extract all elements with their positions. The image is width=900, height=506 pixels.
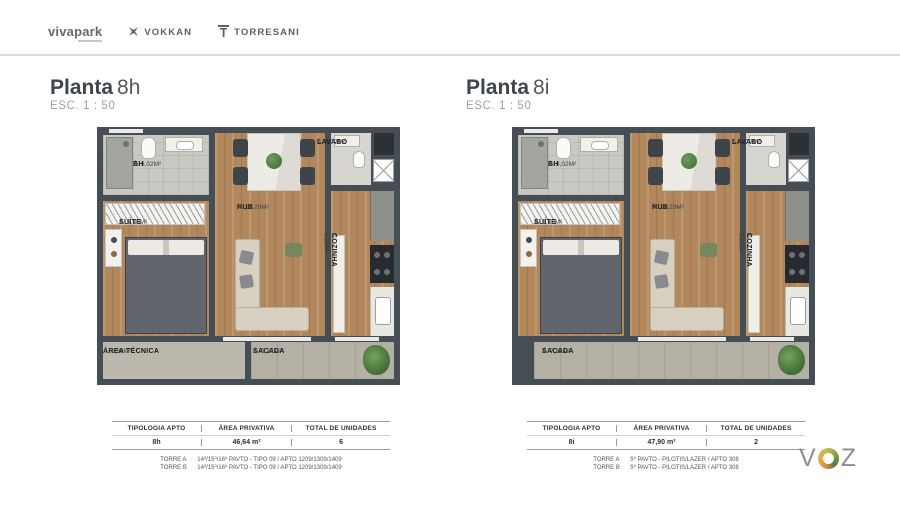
chair (233, 167, 248, 185)
stove (785, 245, 809, 283)
spec-table-header-row: TIPOLOGIA APTO ÁREA PRIVATIVA TOTAL DE U… (112, 422, 390, 435)
washing-machine (373, 159, 394, 182)
toilet (141, 137, 156, 159)
lavabo-toilet (768, 151, 780, 168)
table-plant-icon (681, 153, 697, 169)
torresani-t-icon (218, 24, 229, 42)
balcony-plant-icon (363, 345, 390, 375)
plan-8h-title-code: 8h (117, 76, 140, 99)
kitchen-sink (785, 287, 809, 336)
stove (370, 245, 394, 283)
balcony-divider-wall (245, 342, 251, 379)
vivapark-tagline (78, 40, 102, 42)
spec-table-header-row: TIPOLOGIA APTO ÁREA PRIVATIVA TOTAL DE U… (527, 422, 805, 435)
sofa-chaise (235, 307, 309, 331)
window (638, 337, 726, 341)
spec-table-8h: TIPOLOGIA APTO ÁREA PRIVATIVA TOTAL DE U… (112, 421, 390, 450)
voz-swirl-o-icon (815, 446, 841, 472)
kitchen-cabinet (785, 191, 809, 241)
shower (106, 137, 133, 189)
voz-logo-v: V (799, 446, 816, 471)
shaft (789, 133, 809, 155)
sofa-cushion (239, 250, 254, 265)
plan-8h-title: Planta8h (50, 77, 140, 98)
footnotes-8i: TORRE A 5º PAVTO - PILOTIS/LAZER / APTO … (527, 457, 805, 471)
spec-table-value-row: 8h 46,64 m² 6 (112, 435, 390, 449)
plan-8i-title-word: Planta (466, 76, 529, 99)
pouf (285, 243, 302, 257)
plan-8i-title: Planta8i (466, 77, 549, 98)
chair (715, 167, 730, 185)
plan-8h-title-word: Planta (50, 76, 113, 99)
table-plant-icon (266, 153, 282, 169)
kitchen-sink (370, 287, 394, 336)
vivapark-logo-text: vivapark (48, 25, 102, 38)
footnotes-8h: TORRE A 14º/15º/16º PAVTO - TIPO 09 / AP… (112, 457, 390, 471)
balcony-plant-icon (778, 345, 805, 375)
floorplan-8h: BH Á. 3,02M² SUÍTE Á. 8,85M² HUB Á. 14,2… (97, 127, 400, 385)
chair (300, 167, 315, 185)
chair (300, 139, 315, 157)
footnote-row: TORRE A 14º/15º/16º PAVTO - TIPO 09 / AP… (160, 457, 341, 464)
bathroom-sink (165, 137, 203, 152)
footnote-row: TORRE B 14º/15º/16º PAVTO - TIPO 09 / AP… (160, 465, 341, 472)
footnote-row: TORRE B 5º PAVTO - PILOTIS/LAZER / APTO … (593, 465, 738, 472)
sofa-chaise (650, 307, 724, 331)
bed-pillows (128, 240, 204, 255)
kitchen-cabinet (370, 191, 394, 241)
floorplan-8i: BH Á. 3,02M² SUÍTE Á. 8,85M² HUB Á. 14,2… (512, 127, 815, 385)
torresani-logo: TORRESANI (218, 24, 300, 42)
shelf (520, 229, 537, 267)
sofa-cushion (654, 250, 669, 265)
bathroom-sink (580, 137, 618, 152)
vivapark-logo: vivapark (48, 25, 102, 42)
chair (715, 139, 730, 157)
spec-table-8i: TIPOLOGIA APTO ÁREA PRIVATIVA TOTAL DE U… (527, 421, 805, 450)
voz-logo-z: Z (841, 446, 856, 471)
window (750, 337, 794, 341)
toilet (556, 137, 571, 159)
window (109, 129, 143, 133)
footnote-row: TORRE A 5º PAVTO - PILOTIS/LAZER / APTO … (593, 457, 738, 464)
window (223, 337, 311, 341)
shaft (374, 133, 394, 155)
pouf (700, 243, 717, 257)
plan-8i-title-code: 8i (533, 76, 549, 99)
sofa-cushion (239, 274, 254, 289)
vokkan-x-icon (128, 24, 139, 42)
header-logos: vivapark VOKKAN TORRESANI (48, 24, 300, 42)
bed-pillows (543, 240, 619, 255)
page: vivapark VOKKAN TORRESANI Planta8h ESC. … (0, 0, 900, 506)
shelf (105, 229, 122, 267)
chair (233, 139, 248, 157)
plan-8h-scale: ESC. 1 : 50 (50, 100, 115, 112)
chair (648, 167, 663, 185)
shower (521, 137, 548, 189)
torresani-logo-text: TORRESANI (234, 28, 300, 38)
chair (648, 139, 663, 157)
window (524, 129, 558, 133)
vokkan-logo-text: VOKKAN (144, 28, 192, 38)
window (335, 337, 379, 341)
header-divider (0, 54, 900, 56)
plan-8i-scale: ESC. 1 : 50 (466, 100, 531, 112)
room-sacada-floor (534, 342, 809, 379)
voz-logo: V Z (799, 446, 856, 471)
sofa-cushion (654, 274, 669, 289)
lavabo-toilet (353, 151, 365, 168)
spec-table-value-row: 8i 47,90 m² 2 (527, 435, 805, 449)
washing-machine (788, 159, 809, 182)
vokkan-logo: VOKKAN (128, 24, 192, 42)
